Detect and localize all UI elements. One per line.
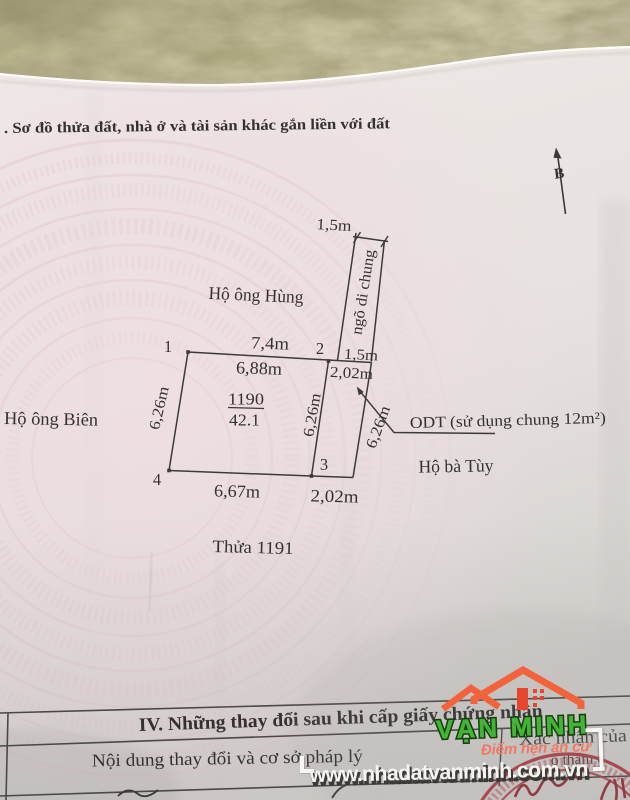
- svg-text:3: 3: [320, 455, 328, 474]
- svg-text:1,5m: 1,5m: [316, 216, 352, 235]
- svg-text:6,88m: 6,88m: [236, 357, 283, 379]
- svg-text:B: B: [553, 166, 565, 183]
- svg-text:2: 2: [316, 339, 324, 358]
- svg-text:6,67m: 6,67m: [214, 480, 261, 501]
- svg-text:Hộ ông Hùng: Hộ ông Hùng: [208, 283, 304, 307]
- svg-text:Thửa 1191: Thửa 1191: [212, 536, 293, 558]
- svg-text:1190: 1190: [228, 390, 264, 409]
- svg-text:4: 4: [153, 470, 161, 489]
- svg-text:Hộ bà Tùy: Hộ bà Tùy: [418, 455, 493, 476]
- svg-text:2,02m: 2,02m: [310, 485, 359, 506]
- svg-text:2,02m: 2,02m: [330, 364, 374, 383]
- svg-text:1: 1: [164, 337, 172, 356]
- svg-text:Hộ ông Biên: Hộ ông Biên: [4, 408, 98, 430]
- svg-text:1,5m: 1,5m: [344, 347, 379, 365]
- svg-text:7,4m: 7,4m: [251, 332, 290, 353]
- svg-text:42.1: 42.1: [229, 411, 260, 430]
